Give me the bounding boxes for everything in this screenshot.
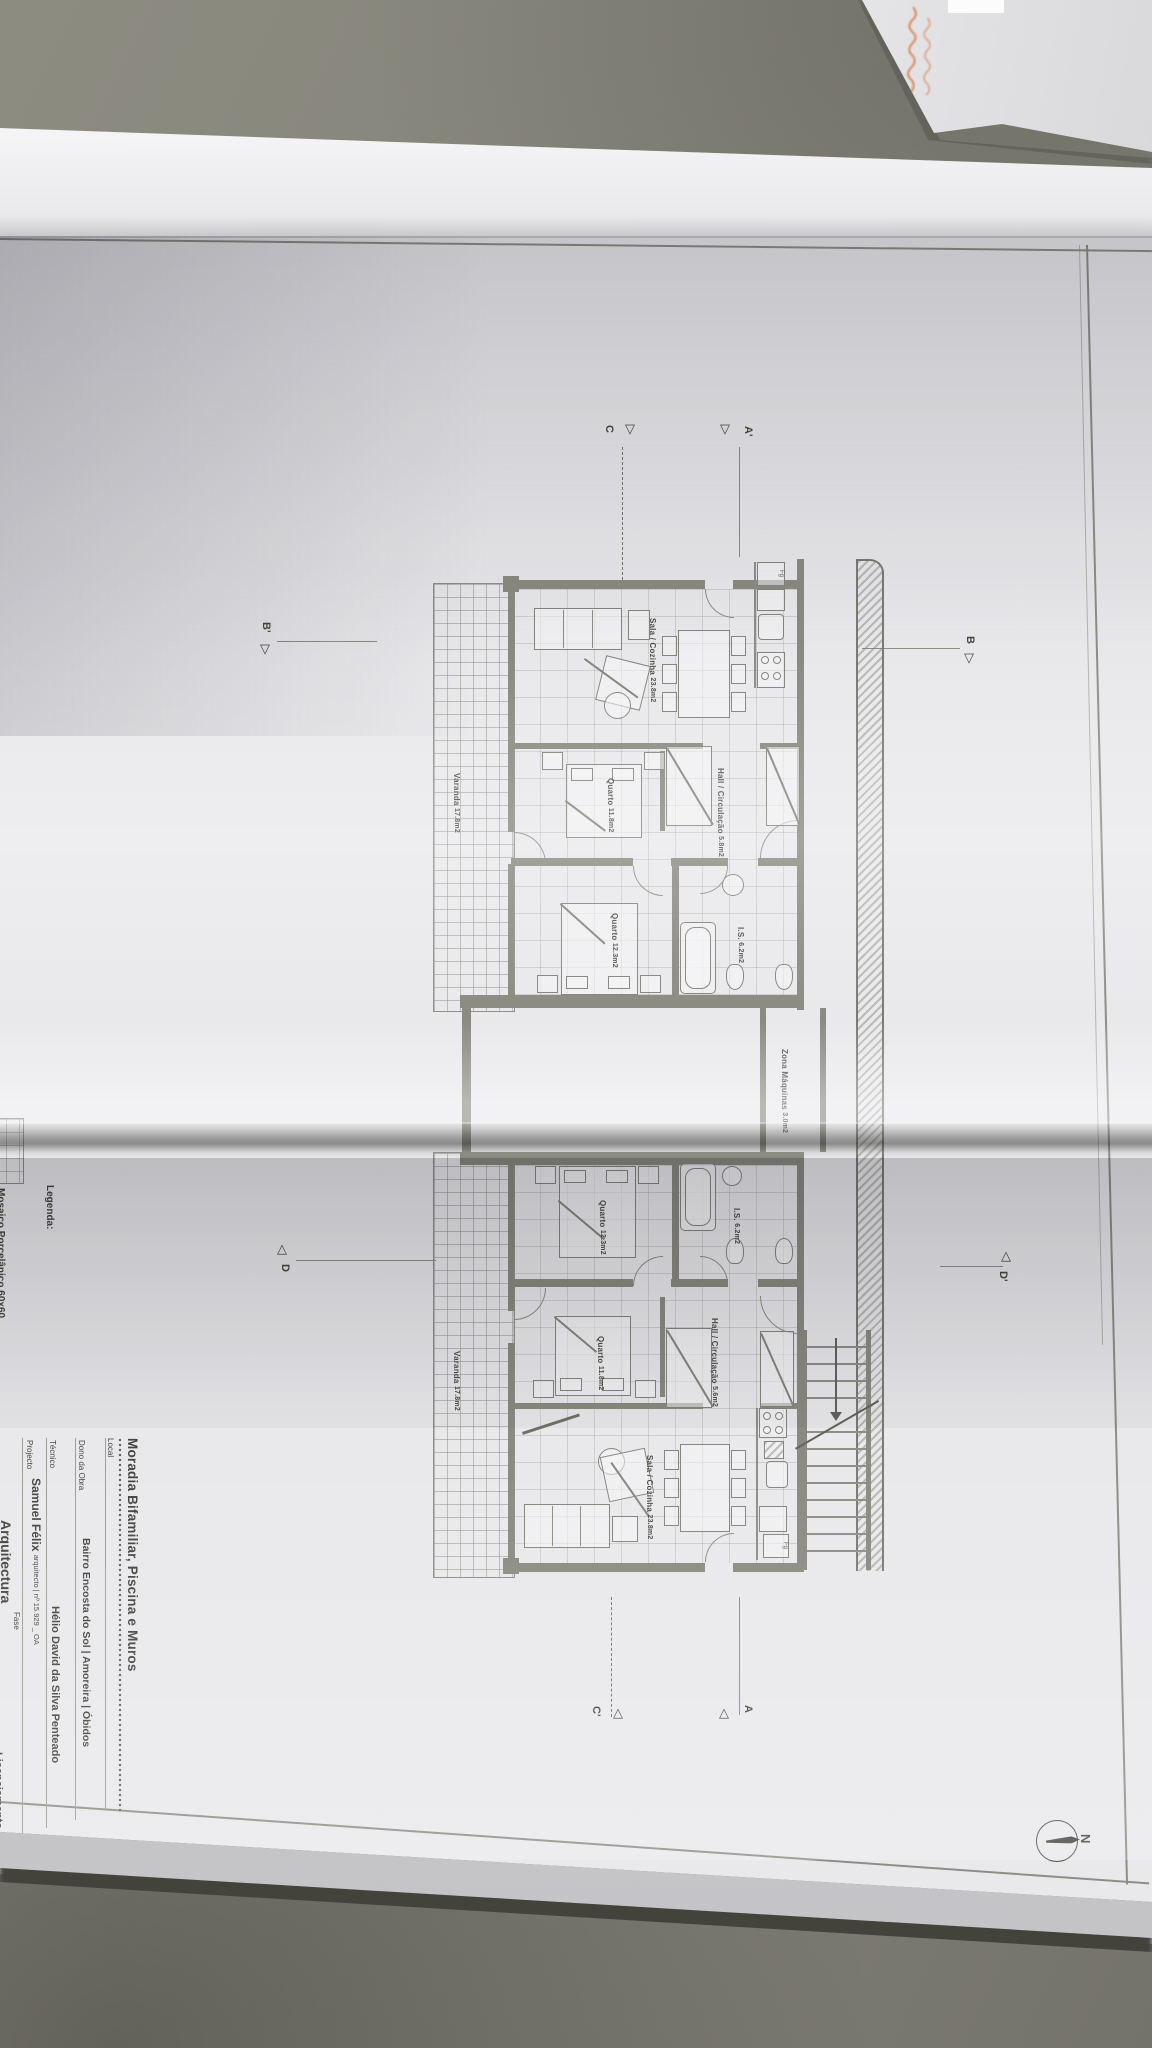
room-name: Sala / Cozinha (648, 618, 657, 675)
room-area: 12.3m2 (611, 942, 618, 967)
wall-segment (758, 1279, 803, 1287)
room-label-zona-maquinas: Zona Máquinas 3.0m2 (780, 1046, 789, 1136)
sofa (534, 608, 622, 650)
room-name: Hall / (710, 1318, 719, 1338)
bed-pillow (560, 1378, 582, 1391)
section-letter-c-prime: C' (590, 1706, 602, 1717)
nightstand (635, 1380, 656, 1398)
title-block-divider (46, 1438, 47, 1828)
chair (662, 636, 677, 656)
section-line-b-prime (277, 641, 377, 642)
wall-segment (733, 1563, 803, 1572)
stair-tread (807, 1431, 866, 1433)
wall-segment (758, 858, 803, 866)
section-letter-b-prime: B' (260, 622, 272, 633)
room-label-hall-lower: Hall / Circulação 5.6m2 (710, 1318, 719, 1406)
section-triangle-icon: △ (719, 1707, 729, 1719)
room-area: 5.8m2 (717, 836, 724, 857)
room-label-varanda-lower: Varanda 17.8m2 (452, 1336, 461, 1426)
room-label-hall-upper: Hall / Circulação 5.8m2 (716, 768, 725, 856)
room-name: Zona Máquinas (780, 1049, 789, 1110)
bidet (775, 964, 793, 990)
bed-pillow (571, 768, 593, 781)
room-name: Quarto (596, 1336, 605, 1363)
room-label-sala-lower: Sala / Cozinha 23.8m2 (645, 1442, 654, 1552)
room-name: Quarto (610, 913, 619, 940)
kitchen-counter-edge (754, 562, 756, 688)
chair (664, 1506, 679, 1526)
wall-segment (760, 1008, 766, 1152)
section-line-c-prime (611, 1597, 612, 1717)
room-area: 5.6m2 (711, 1386, 718, 1407)
field-label-projecto: Projecto (25, 1440, 34, 1469)
stair-tread (807, 1499, 866, 1501)
room-name: I.S. (736, 927, 745, 940)
bed-pillow (564, 1170, 586, 1183)
bed-pillow (608, 976, 630, 989)
kitchen-worktop (764, 1441, 784, 1459)
stove-burner (775, 1412, 783, 1420)
dining-table (680, 1444, 730, 1532)
stove-burner (773, 672, 781, 680)
field-label-local: Local (106, 1438, 115, 1457)
section-line-d (296, 1260, 436, 1261)
kitchen-oven (757, 589, 785, 611)
wall-segment (519, 580, 705, 589)
title-block-divider (22, 1438, 23, 1834)
room-name: Circulação (716, 791, 725, 834)
room-name: Quarto (598, 1200, 607, 1227)
room-label-quarto2-lower: Quarto 12.3m2 (598, 1192, 607, 1262)
section-triangle-icon: ▽ (625, 423, 635, 435)
wall-segment (462, 1008, 471, 1152)
room-label-quarto1-upper: Quarto 11.8m2 (606, 770, 615, 840)
chair (731, 1478, 746, 1498)
nightstand (644, 752, 665, 770)
field-value-tecnico: Samuel Félix arquitecto | nº 15.929 _ OA (29, 1478, 43, 1645)
section-triangle-icon: ▽ (720, 423, 730, 435)
chair (662, 664, 677, 684)
bathroom-sink (722, 874, 744, 896)
section-line-c (622, 447, 623, 580)
stair-direction-arrow (835, 1338, 837, 1416)
bathroom-sink (722, 1166, 742, 1186)
side-table (628, 610, 650, 640)
side-table (612, 1516, 638, 1542)
dining-table (678, 630, 730, 718)
field-label-tecnico: Técnico (48, 1440, 57, 1468)
section-triangle-icon: △ (613, 1707, 623, 1719)
nightstand (533, 1380, 554, 1398)
room-label-is-lower: I.S. 6.2m2 (732, 1196, 741, 1256)
sofa-cushion-line (552, 1506, 553, 1546)
stove-burner (761, 656, 769, 664)
kitchen-oven (759, 1506, 787, 1532)
legend-title: Legenda: (44, 1185, 55, 1229)
room-name: Circulação (710, 1341, 719, 1384)
veranda-lower-floor (433, 1152, 515, 1578)
section-letter-b: B (964, 636, 976, 644)
room-label-varanda-upper: Varanda 17.8m2 (452, 758, 461, 848)
title-block-divider (75, 1438, 76, 1820)
stair-tread (807, 1448, 866, 1450)
printed-drawing: Moradia Bifamiliar, Piscina e Muros Loca… (0, 0, 1152, 2048)
room-area: 11.8m2 (607, 808, 614, 833)
section-triangle-icon: ▽ (260, 643, 270, 655)
wall-segment (820, 1008, 826, 1152)
stair-tread (807, 1533, 866, 1535)
wall-segment (508, 864, 514, 1008)
kitchen-counter-edge (756, 1408, 758, 1560)
room-area: 6.2m2 (737, 942, 744, 963)
room-name: Sala / Cozinha (645, 1455, 654, 1512)
nightstand (535, 1166, 556, 1184)
bed-pillow (606, 1170, 628, 1183)
room-label-is-upper: I.S. 6.2m2 (736, 915, 745, 975)
veranda-upper-floor (433, 583, 515, 1012)
chair (664, 1478, 679, 1498)
chair (731, 1506, 746, 1526)
room-area: 23.8m2 (649, 677, 656, 702)
wall-segment (660, 1297, 665, 1397)
room-name: Varanda (452, 773, 461, 806)
room-name: Quarto (606, 778, 615, 805)
room-area: 3.0m2 (781, 1112, 788, 1133)
title-block-ornament-rule (118, 1438, 122, 1814)
stair-tread (807, 1516, 866, 1518)
stove-burner (773, 656, 781, 664)
room-name: I.S. (732, 1208, 741, 1221)
room-label-quarto1-lower: Quarto 11.8m2 (596, 1326, 605, 1401)
bathtub-inner (685, 1168, 711, 1226)
legend-item-mosaico: Mosaico Porcelânico 60x60 (0, 1188, 6, 1318)
chair (662, 692, 677, 712)
legend-tile-sample (0, 1118, 24, 1184)
tecnico-credentials: arquitecto | nº 15.929 _ OA (32, 1555, 41, 1645)
wall-segment (511, 1279, 633, 1287)
room-label-quarto2-upper: Quarto 12.3m2 (610, 905, 619, 975)
room-area: 23.8m2 (646, 1514, 653, 1539)
section-triangle-icon: △ (1001, 1250, 1011, 1262)
wall-segment (519, 1563, 705, 1572)
kitchen-fridge: Fg (757, 562, 785, 586)
section-triangle-icon: ▽ (964, 652, 974, 664)
field-value-dono-da-obra: Hélio David da Silva Penteado (49, 1606, 61, 1763)
room-name: Hall / (716, 768, 725, 788)
stove-burner (763, 1412, 771, 1420)
tecnico-name: Samuel Félix (29, 1478, 43, 1551)
field-label-fase: Fase (12, 1612, 21, 1630)
section-letter-a-prime: A' (742, 426, 754, 437)
stair-tread (807, 1482, 866, 1484)
title-block-divider (105, 1438, 106, 1810)
room-label-sala-upper: Sala / Cozinha 23.8m2 (648, 600, 657, 720)
bidet (775, 1238, 793, 1264)
kitchen-fridge: Fg (763, 1534, 789, 1558)
wall-segment (672, 866, 679, 995)
section-letter-c: C (603, 425, 615, 433)
stove-burner (761, 672, 769, 680)
section-letter-d: D (279, 1264, 291, 1272)
bed-pillow (612, 768, 634, 781)
field-value-fase: Licenciamento (0, 1752, 4, 1829)
north-letter: N (1078, 1834, 1093, 1843)
sheet-border-left (0, 238, 1152, 252)
sofa-cushion-line (592, 610, 593, 648)
section-line-a-prime (739, 447, 740, 557)
photo-of-floorplan-sheet: Moradia Bifamiliar, Piscina e Muros Loca… (0, 0, 1152, 2048)
stair-tread (807, 1465, 866, 1467)
stove-burner (763, 1426, 771, 1434)
chair (731, 692, 746, 712)
room-area: 17.8m2 (453, 808, 460, 833)
bathtub-inner (685, 927, 711, 989)
nightstand (537, 975, 558, 993)
room-area: 6.2m2 (733, 1223, 740, 1244)
sofa-cushion-line (563, 610, 564, 648)
chair (664, 1450, 679, 1470)
wall-segment (460, 1152, 804, 1165)
room-area: 11.8m2 (597, 1366, 604, 1391)
wall-segment (672, 1152, 679, 1281)
section-line-a (739, 1597, 740, 1715)
sofa-cushion-line (580, 1506, 581, 1546)
nightstand (640, 975, 661, 993)
field-value-local: Bairro Encosta do Sol | Amoreira | Óbido… (80, 1538, 92, 1747)
drawing-sheet-paper: Moradia Bifamiliar, Piscina e Muros Loca… (0, 0, 1152, 2048)
nightstand (542, 752, 563, 770)
section-triangle-icon: △ (277, 1243, 287, 1255)
wall-segment (671, 858, 728, 866)
room-area: 17.8m2 (453, 1386, 460, 1411)
sheet-title: Moradia Bifamiliar, Piscina e Muros (125, 1438, 140, 1672)
kitchen-sink (758, 614, 784, 640)
bed-pillow (566, 976, 588, 989)
section-letter-a: A (742, 1705, 754, 1713)
stair-arrowhead-icon (830, 1412, 842, 1421)
room-name: Varanda (452, 1351, 461, 1384)
field-label-dono-da-obra: Dono da Obra (77, 1440, 86, 1490)
floor-lamp (604, 692, 631, 719)
chair (731, 664, 746, 684)
field-value-projecto: Arquitectura (0, 1520, 14, 1603)
sofa (524, 1504, 610, 1548)
bed-pillow (602, 1378, 624, 1391)
chair (731, 1450, 746, 1470)
chair (731, 636, 746, 656)
wall-segment (866, 1330, 871, 1570)
wall-segment (508, 1343, 514, 1565)
room-area: 12.3m2 (599, 1229, 606, 1254)
wall-segment (508, 589, 514, 832)
nightstand (638, 1166, 659, 1184)
kitchen-sink (766, 1461, 788, 1488)
section-line-d-prime (940, 1266, 1003, 1267)
sheet-border-top (1086, 245, 1128, 1885)
stove-burner (775, 1426, 783, 1434)
stair-tread (807, 1550, 866, 1552)
section-letter-d-prime: D' (997, 1271, 1009, 1282)
